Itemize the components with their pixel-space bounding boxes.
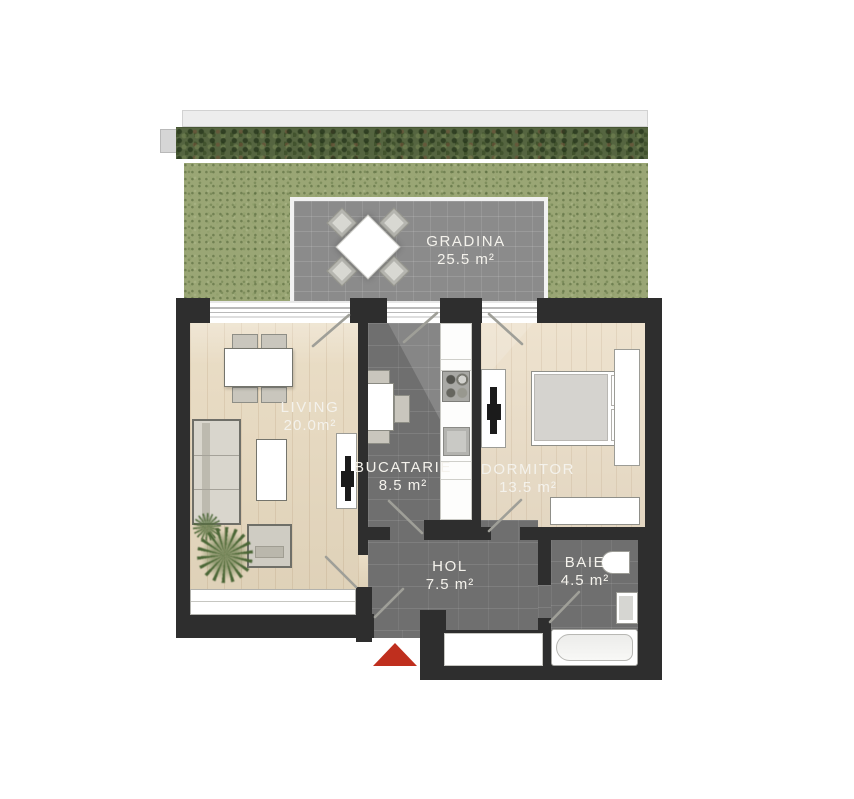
terrace-door-living [210, 301, 350, 318]
sofa-backrest [202, 423, 210, 521]
garden-path-strip [182, 110, 648, 127]
label-dormitor: DORMITOR 13.5 m² [468, 461, 588, 497]
kitchen-chair [394, 395, 410, 423]
room-area: 4.5 m² [525, 572, 645, 590]
plant [193, 513, 221, 541]
floor-plan: GRADINA 25.5 m² [0, 0, 854, 799]
label-living: LIVING 20.0m² [250, 399, 370, 435]
room-area: 8.5 m² [343, 477, 463, 495]
cabinet-inner [619, 596, 633, 620]
coffee-table [256, 439, 287, 501]
dining-chair [232, 334, 258, 349]
garden-hedge [176, 127, 648, 159]
label-baie: BAIE 4.5 m² [525, 554, 645, 590]
wall-living-kitchen [358, 323, 368, 555]
stove [442, 371, 470, 402]
wall-bedroom-hall-right [520, 527, 645, 540]
kitchen-chair [367, 370, 390, 384]
room-area: 7.5 m² [390, 576, 510, 594]
tv-mount-bedroom [487, 404, 501, 420]
label-bucatarie: BUCATARIE 8.5 m² [343, 459, 463, 495]
room-area: 25.5 m² [406, 251, 526, 269]
counter-segment-line [441, 359, 471, 360]
room-name: HOL [390, 558, 510, 576]
terrace-door-kitchen [387, 301, 440, 318]
bathroom-cabinet [616, 592, 638, 624]
room-name: GRADINA [406, 233, 526, 251]
room-name: DORMITOR [468, 461, 588, 479]
wall-entry-left-jamb [356, 587, 372, 642]
wall-top-pillar [350, 298, 387, 323]
room-area: 20.0m² [250, 417, 370, 435]
wall-kitchen-hall-left [358, 527, 390, 540]
terrace-door-bedroom [482, 301, 537, 318]
kitchen-sink [443, 427, 470, 456]
window-mullion [191, 601, 355, 602]
wall-bedroom-hall-jamb [481, 527, 491, 540]
bathtub-basin [556, 634, 633, 661]
room-name: LIVING [250, 399, 370, 417]
label-hol: HOL 7.5 m² [390, 558, 510, 594]
sofa [192, 419, 241, 525]
wall-living-bottom [176, 614, 374, 638]
living-window [190, 589, 356, 615]
kitchen-chair [367, 430, 390, 444]
hall-entry-floor [372, 630, 420, 638]
wall-left [176, 298, 190, 638]
bathtub [551, 629, 638, 666]
entrance-arrow [373, 643, 417, 666]
wall-top-right [537, 298, 662, 323]
room-name: BAIE [525, 554, 645, 572]
mattress [534, 374, 608, 441]
armchair [247, 524, 292, 568]
wall-kitchen-hall-right [424, 520, 481, 540]
sofa-cushion-line [194, 489, 239, 490]
wardrobe [614, 349, 640, 466]
living-door-floor-patch [358, 555, 368, 587]
room-name: BUCATARIE [343, 459, 463, 477]
sink-basin [447, 431, 466, 452]
wall-right-upper [645, 298, 662, 539]
room-area: 13.5 m² [468, 479, 588, 497]
armchair-cushion [255, 546, 284, 558]
dining-chair [261, 334, 287, 349]
label-gradina: GRADINA 25.5 m² [406, 233, 526, 269]
wall-top-pillar [440, 298, 482, 323]
hall-niche-window [444, 633, 543, 666]
bedroom-bench [550, 497, 640, 525]
dining-table [224, 348, 293, 387]
sofa-cushion-line [194, 455, 239, 456]
